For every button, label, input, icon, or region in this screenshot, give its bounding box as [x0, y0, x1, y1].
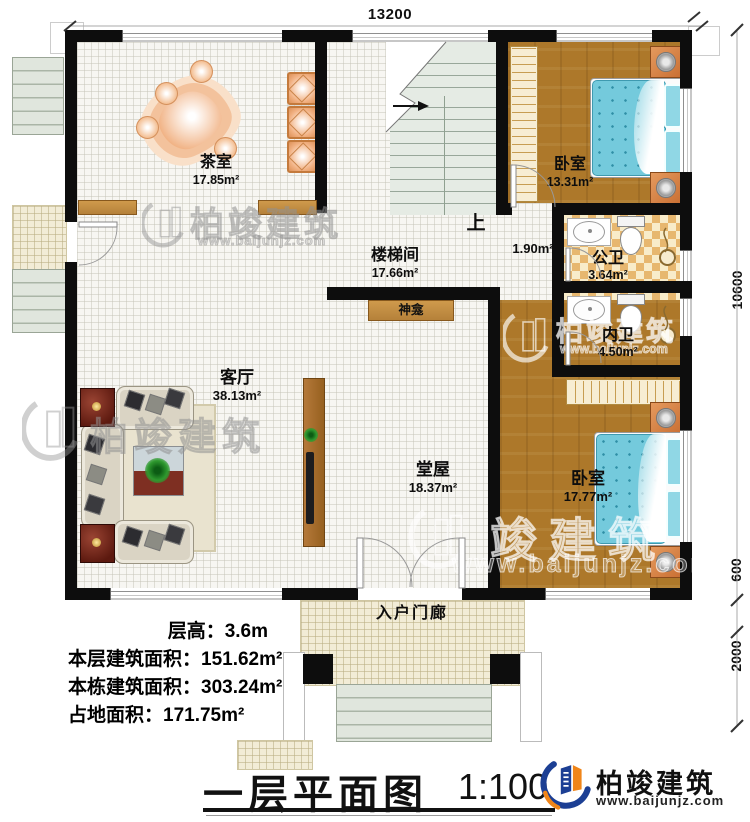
tea-stool [155, 82, 178, 105]
stat-floor-height: 层高：3.6m [68, 616, 268, 643]
dim-right-step: 600 [728, 550, 744, 590]
floor-plan-canvas: 神龛 柏竣建筑 www.baijunjz.com 柏竣建筑 柏竣建筑 www.b… [0, 0, 750, 822]
porch-label: 入户门廊 [352, 606, 472, 623]
nightstand [650, 172, 682, 204]
window [680, 430, 692, 544]
nightstand [650, 402, 682, 434]
tea-chair [287, 106, 318, 139]
wall-hall-top [327, 287, 500, 300]
wall-tea-stair [315, 30, 327, 213]
stair-up-label: 上 [462, 214, 490, 234]
exterior-steps-topleft [12, 57, 64, 135]
watermark-logo-icon [142, 196, 186, 254]
room-label-private-bath: 内卫 [582, 328, 654, 345]
watermark-text: 柏竣建筑 [90, 406, 266, 461]
brand-url: www.baijunjz.com [596, 793, 724, 808]
window [352, 30, 490, 42]
dim-tick [731, 594, 743, 606]
wall-bath-bottom [552, 365, 692, 377]
porch-steps [336, 684, 492, 742]
dim-ref-box [688, 26, 720, 56]
watermark-logo-icon [22, 394, 82, 468]
shrine-label: 神龛 [398, 303, 423, 317]
plant [145, 458, 170, 483]
dim-right-height: 10600 [729, 263, 745, 317]
window [110, 588, 284, 600]
wall [680, 30, 692, 88]
stair-treads [390, 96, 500, 215]
room-area-hall: 18.37m² [394, 480, 472, 495]
tv [306, 452, 314, 524]
room-label-bedroom2: 卧室 [544, 470, 632, 488]
toilet-tank [617, 216, 645, 227]
watermark-logo-icon [503, 306, 551, 370]
plan-scale: 1:100 [458, 766, 548, 808]
toilet-tank [617, 294, 645, 305]
side-table [80, 524, 115, 563]
sink-basin [573, 221, 605, 243]
room-area-stairwell: 17.66m² [345, 266, 445, 280]
stair-stringer [444, 96, 445, 215]
room-label-hall: 堂屋 [398, 461, 468, 479]
wall-bath-divider [552, 281, 692, 293]
sideboard [78, 200, 137, 215]
brand-logo-icon [540, 758, 592, 812]
window [556, 30, 654, 42]
stat-floor-area: 本层建筑面积：151.62m² [68, 644, 282, 671]
side-entry-pad [12, 205, 67, 271]
room-area-living: 38.13m² [198, 388, 276, 403]
dim-tick [731, 24, 743, 36]
tea-chair [287, 140, 318, 173]
tea-chair [287, 72, 318, 105]
room-label-stairwell: 楼梯间 [345, 248, 445, 265]
room-label-tea: 茶室 [166, 155, 266, 172]
wall [680, 336, 692, 430]
window [122, 30, 284, 42]
porch-side-apron [520, 652, 542, 742]
title-underline-thin [206, 815, 552, 816]
tea-stool [190, 60, 213, 83]
dim-top-width: 13200 [330, 6, 450, 23]
window [680, 88, 692, 174]
room-area-private-bath: 4.50m² [582, 345, 654, 359]
shower-head [659, 249, 676, 266]
tea-stool [136, 116, 159, 139]
porch-column [303, 654, 333, 684]
dim-tick [688, 12, 700, 22]
watermark-url-large: www.baijunjz.com [452, 550, 716, 579]
wall [552, 203, 692, 215]
bed-sheet-fold [634, 80, 664, 174]
room-label-public-bath: 公卫 [572, 251, 644, 268]
wall [282, 588, 358, 600]
wall-stair-bedroom1 [496, 30, 508, 215]
wall [496, 203, 512, 215]
stat-footprint: 占地面积：171.75m² [68, 700, 244, 727]
porch-column [490, 654, 520, 684]
window [545, 588, 652, 600]
title-underline [203, 808, 555, 812]
room-area-bedroom2: 17.77m² [544, 489, 632, 504]
room-area-public-bath: 3.64m² [572, 268, 644, 282]
window [680, 298, 692, 338]
porch-side-apron [283, 652, 305, 742]
plant [304, 428, 318, 442]
shrine-cabinet: 神龛 [368, 300, 454, 321]
nightstand [650, 46, 682, 78]
vestibule-area-label: 1.90m² [495, 241, 571, 256]
side-entry-steps [12, 269, 67, 333]
stat-building-area: 本栋建筑面积：303.24m² [68, 672, 282, 699]
room-label-living: 客厅 [202, 369, 272, 387]
room-label-bedroom1: 卧室 [528, 157, 612, 174]
wall [65, 30, 77, 222]
dim-tick [731, 720, 743, 732]
room-area-bedroom1: 13.31m² [528, 175, 612, 189]
watermark-url: www.baijunjz.com [198, 233, 326, 248]
room-area-tea: 17.85m² [166, 173, 266, 187]
wall [462, 588, 545, 600]
dim-right-porch: 2000 [728, 632, 744, 680]
stair-treads-upper [390, 52, 500, 96]
